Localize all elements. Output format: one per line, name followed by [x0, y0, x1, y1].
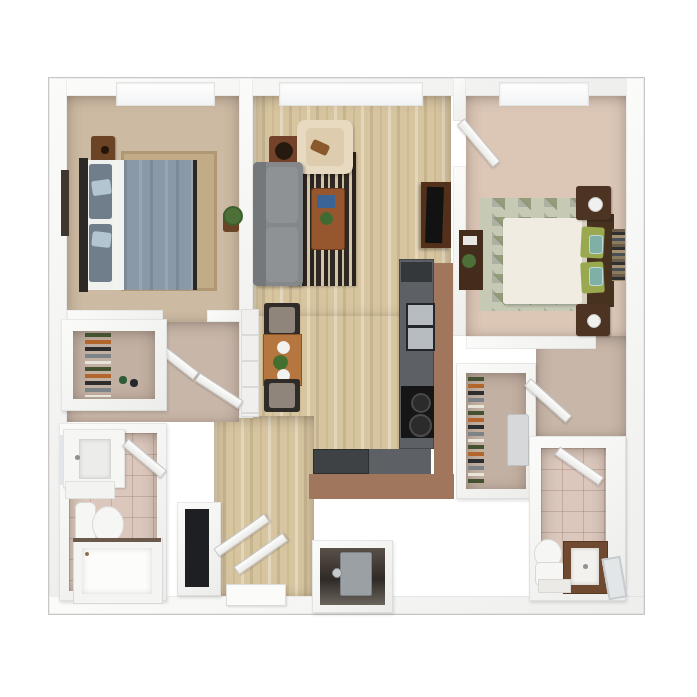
wall-bedroom2-left-upper	[453, 78, 466, 121]
bedroom2-lamp-bottom	[587, 314, 601, 328]
utility-valve	[332, 568, 342, 578]
kitchen-sink-basin-top	[406, 303, 435, 327]
apartment-plan	[48, 77, 645, 615]
living-sofa-seat-top	[266, 167, 298, 223]
bathroom2-bath-mat	[538, 579, 571, 593]
bedroom2-pillow-teal-bottom	[589, 267, 603, 286]
living-tv	[425, 187, 444, 244]
closet2-appliance	[507, 414, 529, 466]
living-coffee-table-plant	[320, 212, 333, 225]
living-sofa-seat-bottom	[266, 227, 298, 282]
bedroom1-wall-shelf-art	[61, 170, 69, 236]
bathroom1-faucet	[75, 455, 80, 460]
kitchen-sink-basin-bottom	[406, 326, 435, 351]
living-room-window	[279, 82, 423, 106]
floor-plan-image	[0, 0, 697, 697]
dining-plate-top	[277, 341, 290, 354]
closet1-hanging-clothes	[85, 333, 111, 397]
bedroom1-sheet-fold	[113, 160, 124, 290]
bedroom2-desk-item	[463, 236, 477, 245]
kitchen-refrigerator	[241, 309, 259, 417]
closet1-item-dark	[130, 379, 138, 387]
closet1-item-green	[119, 376, 127, 384]
bedroom1-accent-pillow-bottom	[91, 231, 111, 248]
living-speaker-cone	[275, 142, 293, 160]
wall-right	[626, 78, 644, 614]
bedroom1-duvet	[124, 160, 194, 290]
bedroom2-pillow-teal-top	[589, 235, 603, 254]
entry-hall-floor	[214, 416, 314, 596]
entry-threshold-mat	[226, 584, 286, 606]
bathroom1-tub-faucet	[85, 552, 89, 556]
bedroom2-lamp-top	[588, 197, 603, 212]
kitchen-bar-side	[434, 263, 453, 499]
wall-bedroom2-bottom	[466, 336, 596, 349]
bedroom1-plant	[223, 206, 243, 226]
bedroom2-headboard-books	[612, 229, 625, 281]
kitchen-lower-counter-gray	[369, 449, 431, 474]
dining-centerpiece-plant	[273, 355, 288, 370]
kitchen-bar-bottom	[309, 474, 454, 499]
utility-water-heater	[340, 552, 372, 596]
bedroom1-accent-pillow-top	[91, 179, 112, 196]
bedroom2-mattress	[503, 218, 588, 304]
linen-closet-shelves	[185, 509, 209, 587]
bathroom1-sink	[79, 439, 111, 479]
bathroom1-bathtub-basin	[82, 548, 152, 594]
bathroom2-faucet	[583, 564, 588, 569]
bathroom1-bathtub-rim	[73, 538, 161, 542]
bedroom1-window	[116, 82, 215, 106]
bedroom2-window	[499, 82, 589, 106]
closet2-hanging-clothes	[468, 377, 484, 483]
kitchen-appliance-top	[401, 262, 432, 282]
bedroom1-footboard	[193, 160, 197, 290]
bedroom1-nightstand-speaker	[101, 146, 109, 154]
bedroom2-desk-plant	[462, 254, 476, 268]
kitchen-burner-top	[411, 393, 431, 413]
kitchen-burner-bottom	[409, 414, 432, 437]
dining-chair-bottom-seat	[269, 383, 295, 408]
hallway-right-floor	[536, 336, 626, 436]
bedroom1-headboard	[79, 158, 88, 292]
kitchen-lower-cabinets-dark	[313, 449, 369, 474]
living-sofa-backrest	[253, 162, 266, 286]
bathroom1-wall-cabinet	[65, 481, 115, 499]
living-coffee-table-book	[317, 195, 335, 208]
dining-chair-top-seat	[269, 307, 295, 333]
